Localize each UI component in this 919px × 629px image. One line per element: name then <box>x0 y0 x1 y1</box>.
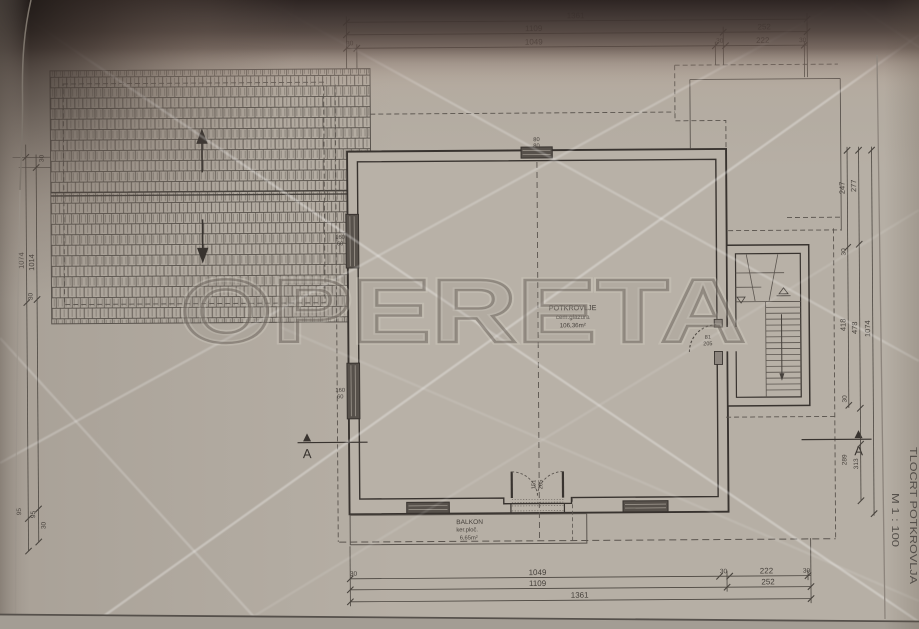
svg-text:80: 80 <box>533 137 539 143</box>
svg-text:289: 289 <box>841 454 848 465</box>
svg-text:151: 151 <box>531 480 537 490</box>
svg-text:160: 160 <box>335 388 345 394</box>
svg-text:30: 30 <box>41 521 48 529</box>
svg-text:1049: 1049 <box>529 568 547 577</box>
svg-text:1361: 1361 <box>571 591 589 600</box>
svg-text:60: 60 <box>337 394 343 400</box>
svg-text:1109: 1109 <box>529 579 547 588</box>
svg-text:30: 30 <box>803 568 811 575</box>
svg-text:60: 60 <box>337 241 343 247</box>
svg-text:247: 247 <box>838 182 847 195</box>
svg-text:160: 160 <box>335 235 345 241</box>
svg-text:277: 277 <box>849 179 858 192</box>
svg-text:205: 205 <box>538 480 544 490</box>
svg-text:BALKON: BALKON <box>456 519 483 526</box>
svg-text:6,65m²: 6,65m² <box>460 535 478 541</box>
svg-text:TLOCRT POTKROVLJA: TLOCRT POTKROVLJA <box>907 447 918 584</box>
svg-text:313: 313 <box>853 458 860 469</box>
svg-text:30: 30 <box>350 571 358 578</box>
svg-text:A: A <box>303 446 312 461</box>
svg-text:30: 30 <box>842 395 849 403</box>
svg-text:95: 95 <box>30 510 37 518</box>
svg-text:M 1 : 100: M 1 : 100 <box>889 493 900 547</box>
svg-text:222: 222 <box>760 566 774 575</box>
svg-text:252: 252 <box>761 577 775 586</box>
svg-text:ker.ploč.: ker.ploč. <box>456 527 478 533</box>
svg-text:30: 30 <box>720 568 728 575</box>
